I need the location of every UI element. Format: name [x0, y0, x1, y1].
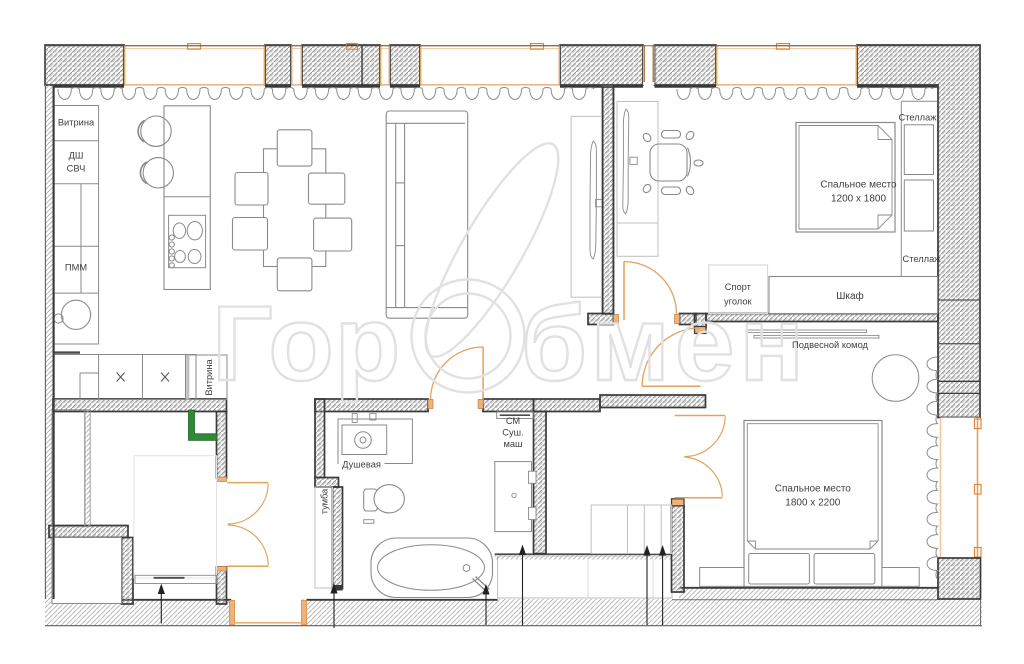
svg-text:Шкаф: Шкаф — [836, 290, 864, 302]
svg-text:Суш.: Суш. — [502, 428, 523, 438]
svg-text:Спальное место: Спальное место — [775, 484, 852, 495]
svg-text:бмен: бмен — [521, 283, 809, 403]
svg-text:Витрина: Витрина — [204, 359, 214, 396]
svg-text:Спорт: Спорт — [725, 282, 752, 292]
svg-text:Витрина: Витрина — [58, 118, 95, 128]
svg-text:Подвесной комод: Подвесной комод — [792, 340, 869, 350]
svg-text:Стеллаж: Стеллаж — [899, 113, 938, 123]
svg-text:1200 x 1800: 1200 x 1800 — [831, 194, 886, 205]
svg-text:тумба: тумба — [320, 488, 330, 514]
svg-text:Душевая: Душевая — [342, 460, 381, 470]
svg-text:1800 x 2200: 1800 x 2200 — [785, 498, 840, 509]
svg-text:маш: маш — [503, 439, 522, 449]
svg-text:ПММ: ПММ — [65, 263, 87, 273]
svg-text:СВЧ: СВЧ — [67, 164, 86, 174]
svg-text:Гор: Гор — [212, 283, 401, 403]
svg-text:СМ: СМ — [506, 416, 520, 426]
svg-text:Стеллаж: Стеллаж — [903, 254, 942, 264]
svg-text:уголок: уголок — [724, 297, 753, 307]
svg-text:ДШ: ДШ — [69, 151, 84, 161]
svg-text:Спальное место: Спальное место — [820, 180, 897, 191]
